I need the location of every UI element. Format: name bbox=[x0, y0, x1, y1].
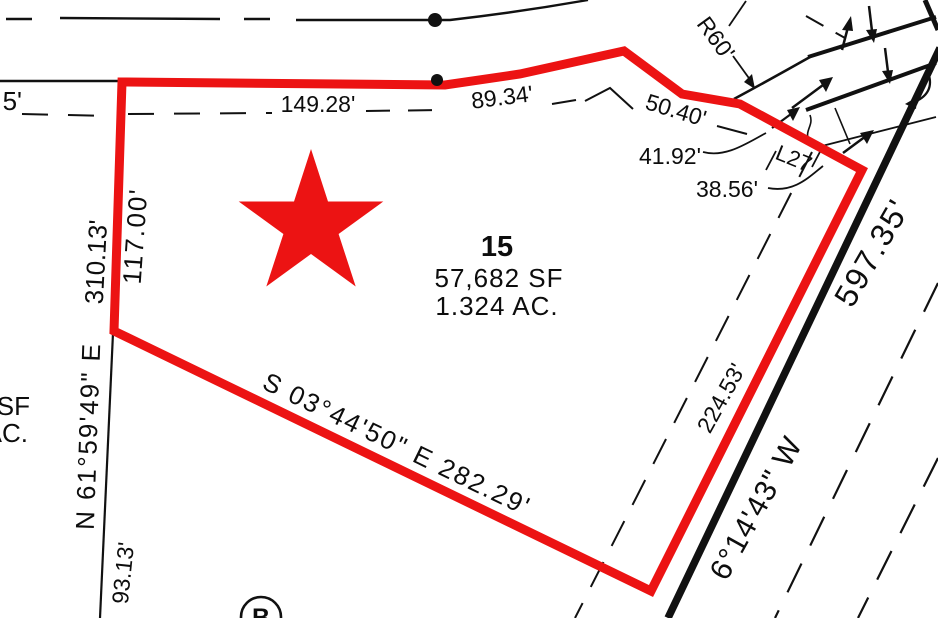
intersection-dash bbox=[806, 16, 845, 38]
top-dim-dash-right bbox=[366, 110, 442, 111]
street-node-dot-on-boundary bbox=[431, 74, 443, 86]
lot-number-label: 15 bbox=[481, 231, 513, 263]
arrow-down-shaft bbox=[869, 6, 872, 31]
selected-lot-star-icon bbox=[239, 149, 384, 287]
adjacent-lot-ac-label: AC. bbox=[0, 418, 28, 448]
plat-sheet: B 5' 149.28' 89.34' 50.40' 41.92' 38.56'… bbox=[0, 0, 938, 618]
plat-map-canvas: B 5' 149.28' 89.34' 50.40' 41.92' 38.56'… bbox=[0, 0, 938, 618]
street-corner-curve bbox=[734, 57, 810, 99]
point-marker-label: B bbox=[252, 604, 270, 618]
dim-149-label: 149.28' bbox=[281, 91, 356, 117]
lot-area-sf-label: 57,682 SF bbox=[435, 263, 564, 293]
top-dim-dash-left bbox=[22, 114, 112, 116]
top-dim-dash-mid bbox=[128, 113, 272, 114]
dim-partial-left-label: 5' bbox=[3, 86, 22, 116]
arrow-up-head bbox=[842, 16, 853, 31]
bearing-left-label: N 61°59'49" E bbox=[70, 342, 107, 531]
arrow-down2-shaft bbox=[885, 48, 888, 72]
arrow-upright3-head bbox=[860, 130, 874, 144]
dim-dash-after-5040 bbox=[717, 126, 747, 134]
road-dashed-line-east-2 bbox=[858, 458, 938, 618]
adjacent-lot-sf-label: SF bbox=[0, 391, 30, 421]
top-street-line bbox=[6, 0, 588, 20]
dim-38-label: 38.56' bbox=[696, 176, 758, 202]
r60-leader-upper bbox=[729, 1, 746, 26]
arrow-down-head bbox=[866, 29, 877, 43]
cross-street-stub bbox=[925, 0, 938, 30]
dim-89-label: 89.34' bbox=[470, 80, 535, 113]
arrow-upright1-head bbox=[819, 77, 833, 92]
dim-41-label: 41.92' bbox=[639, 143, 701, 169]
r60-leader-lower bbox=[733, 56, 751, 81]
dim-peak-leader bbox=[585, 88, 633, 109]
lot-area-ac-label: 1.324 AC. bbox=[435, 291, 558, 321]
arrow-upright2-head bbox=[787, 107, 800, 121]
bearing-bottom-label: S 03°44'50" E 282.29' bbox=[258, 366, 536, 521]
dim-117-label: 117.00' bbox=[117, 187, 154, 285]
dim-93-label: 93.13' bbox=[107, 541, 139, 605]
cross-street-thin-line bbox=[818, 117, 936, 147]
dim-dash-before-5040 bbox=[552, 100, 576, 104]
leader-4192 bbox=[703, 133, 766, 153]
driveway-side-line bbox=[835, 108, 850, 144]
street-node-dot-upper bbox=[428, 13, 442, 27]
dim-310-label: 310.13' bbox=[79, 219, 113, 305]
r60-arrowhead bbox=[744, 74, 755, 89]
